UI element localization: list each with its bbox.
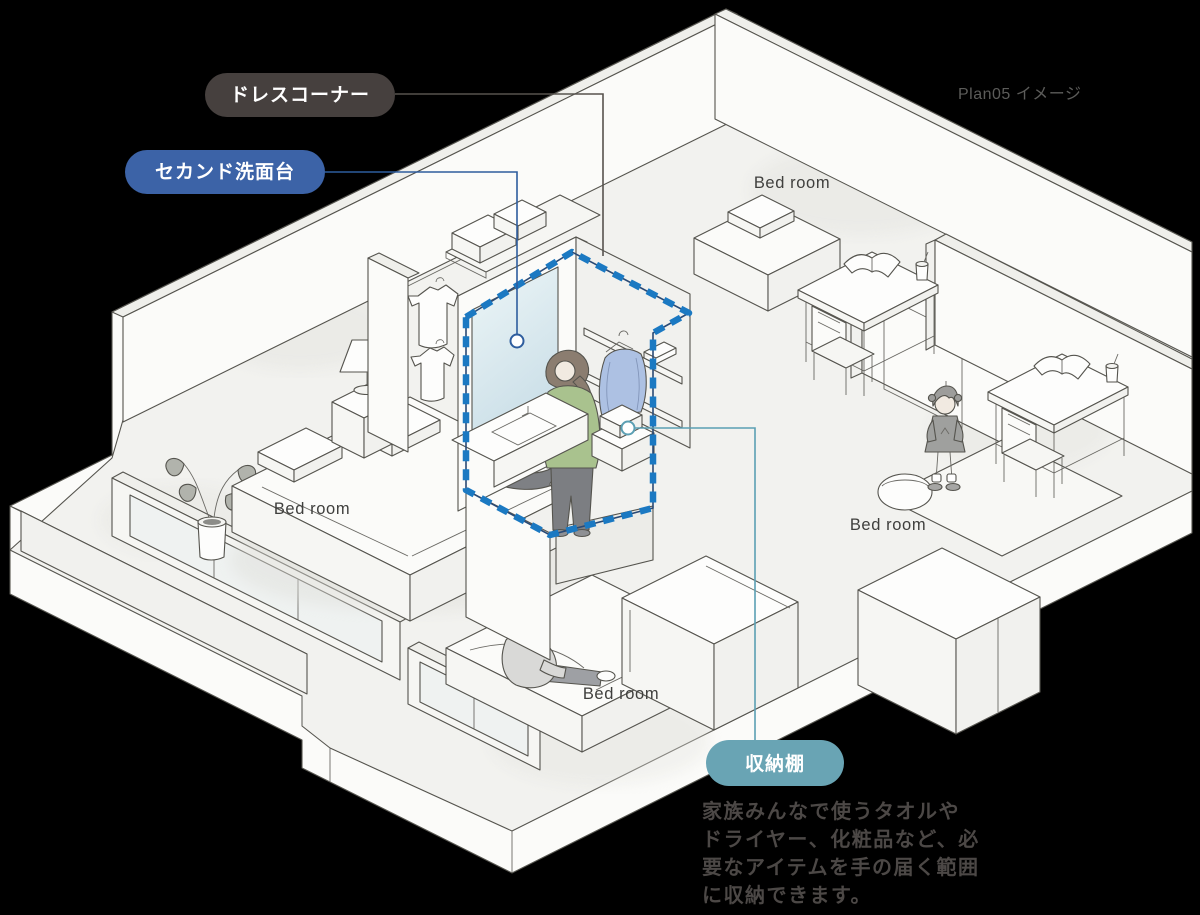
description-line: 要なアイテムを手の届く範囲 bbox=[702, 855, 980, 879]
bedroom-label-top-right: Bed room bbox=[754, 174, 830, 192]
description-line: ドライヤー、化粧品など、必 bbox=[702, 827, 980, 851]
description-line: に収納できます。 bbox=[702, 883, 872, 907]
second-vanity-label: セカンド洗面台 bbox=[155, 160, 295, 183]
dress-corner-label: ドレスコーナー bbox=[230, 85, 370, 106]
bedroom-label-master: Bed room bbox=[274, 500, 350, 518]
pouf bbox=[878, 474, 932, 510]
description-line: 家族みんなで使うタオルや bbox=[702, 799, 960, 823]
storage-shelf-endpoint bbox=[622, 422, 635, 435]
callout-second-vanity: セカンド洗面台 bbox=[125, 150, 325, 194]
bedroom-label-right: Bed room bbox=[850, 516, 926, 534]
plan05-isometric-illustration: ドレスコーナー セカンド洗面台 収納棚 Plan05 イメージ Bed room… bbox=[0, 0, 1200, 915]
illustration-canvas: ドレスコーナー セカンド洗面台 収納棚 Plan05 イメージ Bed room… bbox=[0, 0, 1200, 915]
plan-image-label: Plan05 イメージ bbox=[958, 86, 1081, 103]
description-text: 家族みんなで使うタオルや ドライヤー、化粧品など、必 要なアイテムを手の届く範囲… bbox=[702, 799, 980, 907]
callout-dress-corner: ドレスコーナー bbox=[205, 73, 395, 117]
bedroom-label-bottom: Bed room bbox=[583, 685, 659, 703]
callout-storage-shelf: 収納棚 bbox=[706, 740, 844, 786]
storage-shelf-label: 収納棚 bbox=[745, 752, 805, 775]
second-vanity-endpoint bbox=[511, 335, 524, 348]
